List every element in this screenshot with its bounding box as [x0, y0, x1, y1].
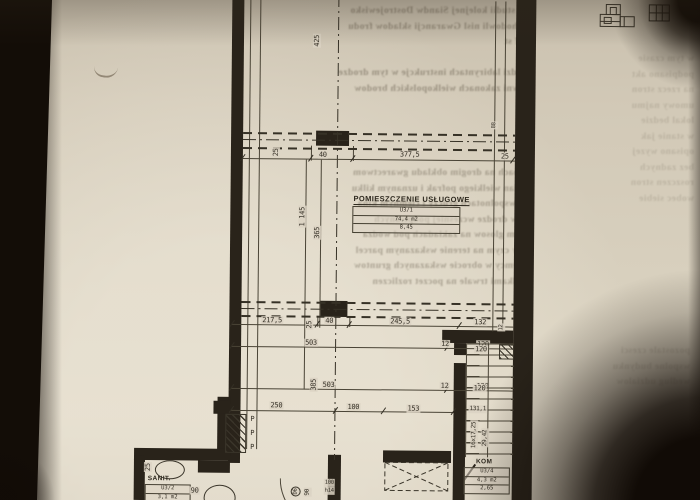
- door-tag-d6: D6: [291, 486, 301, 496]
- dim-door-90: 90: [304, 488, 312, 497]
- dim-377-5: 377,5: [399, 150, 421, 158]
- dim-1145: 1 145: [298, 206, 306, 228]
- dim-12: 12: [440, 340, 450, 348]
- dimension-line: [243, 158, 515, 162]
- dim-365: 365: [313, 226, 321, 240]
- wall-face-line: [256, 0, 261, 449]
- dim-100: 100: [346, 403, 360, 411]
- shaft-hatch: [499, 344, 514, 359]
- beam-axis-line: [243, 139, 515, 143]
- beam-dashed-line: [243, 132, 515, 136]
- dim-stair-120a: 120: [474, 345, 488, 353]
- wall-face-line: [246, 0, 251, 449]
- duct-hatch: [225, 414, 246, 453]
- dim-sanit-25: 25: [144, 462, 152, 472]
- room-label-main: POMIESZCZENIE USŁUGOWE: [353, 194, 469, 206]
- dim-250: 250: [269, 401, 283, 409]
- wall-left: [228, 0, 245, 463]
- key-plan-icon: [598, 3, 638, 31]
- toilet-fixture: [203, 485, 235, 500]
- dim-stair-131: 131,1: [468, 405, 487, 413]
- dim-door-100: 100: [324, 479, 335, 487]
- vent-p3: P: [249, 443, 255, 451]
- stair-riser-note: 16x17,25: [470, 421, 478, 450]
- dim-25: 25: [305, 320, 313, 330]
- room-table-main: U3/1 74,4 m2 8,45: [352, 206, 460, 234]
- dim-12b: 12: [440, 382, 450, 390]
- dim-217-5: 217,5: [261, 316, 283, 324]
- void-opening-marker: [384, 461, 450, 493]
- dim-153: 153: [406, 405, 420, 413]
- beam-axis-line: [241, 308, 513, 312]
- wall-bottom-left: [134, 448, 230, 461]
- stair-riser-note2: 29,42: [481, 429, 489, 448]
- dim-132: 132: [473, 318, 487, 326]
- dim-40b: 40: [324, 317, 334, 325]
- room-label-sanit: SANIT.: [148, 475, 171, 482]
- room-area: 3,1 m2: [146, 493, 190, 500]
- dim-stair-120b: 120: [473, 384, 487, 392]
- vent-p1: P: [249, 415, 255, 423]
- beam-dashed-line: [241, 301, 513, 305]
- wall-face-line: [502, 1, 506, 331]
- vent-p2: P: [249, 429, 255, 437]
- pencil-mark: [93, 62, 118, 79]
- wall-right: [512, 0, 537, 500]
- scanned-floor-plan-photo: m i studii kolejnej Siandw Dostrojewisko…: [0, 0, 700, 500]
- axis-centerline: [334, 0, 340, 460]
- dim-425: 425: [313, 34, 321, 48]
- wall-notch: [198, 461, 230, 473]
- dim-25-left: 25: [272, 147, 280, 157]
- dim-12v: 12: [497, 323, 505, 331]
- wall-face-line: [492, 1, 496, 331]
- witness-line: [304, 160, 307, 390]
- dim-door-h14: h14: [324, 487, 335, 495]
- dim-503: 503: [304, 339, 318, 347]
- dimension-line: [231, 324, 513, 328]
- key-plan-icon: [648, 4, 672, 24]
- dim-40: 40: [318, 151, 328, 159]
- dim-sanit-90: 90: [190, 486, 200, 494]
- room-label-kom: KOM: [476, 458, 492, 465]
- floor-plan-drawing: 425 88 25 40 377,5 25 1 145 365 217,5 25…: [0, 0, 700, 500]
- room-height: 8,45: [353, 223, 459, 233]
- beam-dashed-line: [243, 147, 515, 151]
- room-table-kom: U3/4 4,3 m2 2,65: [464, 467, 510, 494]
- room-height: 2,65: [465, 484, 509, 493]
- dim-385: 385: [310, 378, 318, 392]
- dim-245-5: 245,5: [389, 317, 411, 325]
- dim-88: 88: [490, 121, 498, 129]
- room-table-sanit: U3/2 3,1 m2: [145, 484, 191, 500]
- dim-25-right: 25: [500, 152, 510, 160]
- dim-503b: 503: [322, 381, 336, 389]
